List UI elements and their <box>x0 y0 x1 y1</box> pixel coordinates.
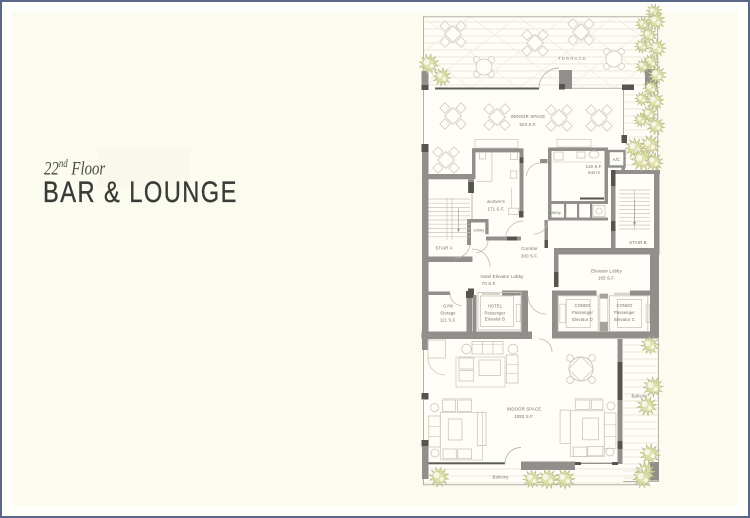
svg-text:Utility: Utility <box>550 210 561 215</box>
svg-text:HOTEL: HOTEL <box>488 304 503 309</box>
svg-text:A/C: A/C <box>613 157 620 162</box>
svg-text:CONDO: CONDO <box>575 303 591 308</box>
svg-text:Passenger: Passenger <box>485 311 506 316</box>
svg-text:TERRACE: TERRACE <box>558 56 587 61</box>
svg-text:70 S.F.: 70 S.F. <box>482 281 496 286</box>
svg-text:Storage: Storage <box>440 311 456 316</box>
svg-text:Balcony: Balcony <box>493 475 510 480</box>
svg-text:Passenger: Passenger <box>572 310 593 315</box>
svg-text:Hotel Elevator Lobby: Hotel Elevator Lobby <box>481 274 525 279</box>
svg-text:1083 S.F.: 1083 S.F. <box>514 414 534 419</box>
svg-text:300 S.F.: 300 S.F. <box>521 254 538 259</box>
svg-text:121 S.F.: 121 S.F. <box>440 318 456 323</box>
svg-text:INDOOR SPACE: INDOOR SPACE <box>507 407 541 412</box>
svg-text:STAIR B: STAIR B <box>629 240 646 245</box>
svg-text:623 S.F.: 623 S.F. <box>520 122 537 127</box>
svg-text:Passenger: Passenger <box>614 310 635 315</box>
svg-text:GYM: GYM <box>443 304 453 309</box>
svg-text:171 S.F.: 171 S.F. <box>488 206 505 211</box>
svg-text:Elevator B: Elevator B <box>485 317 506 322</box>
svg-text:INDOOR SPACE: INDOOR SPACE <box>511 114 545 119</box>
svg-text:Elevator C: Elevator C <box>614 317 635 322</box>
svg-text:women’s: women’s <box>487 199 505 204</box>
svg-text:Elevator Lobby: Elevator Lobby <box>591 269 622 274</box>
svg-text:Elevator D: Elevator D <box>572 317 593 322</box>
svg-text:STAIR A: STAIR A <box>435 246 452 251</box>
svg-text:165 S.F.: 165 S.F. <box>598 276 615 281</box>
svg-text:men’s: men’s <box>588 170 600 175</box>
svg-text:Utility: Utility <box>474 228 485 233</box>
svg-text:CONDO: CONDO <box>617 303 633 308</box>
svg-text:119 S.F.: 119 S.F. <box>586 164 603 169</box>
svg-text:Corridor: Corridor <box>521 246 538 251</box>
